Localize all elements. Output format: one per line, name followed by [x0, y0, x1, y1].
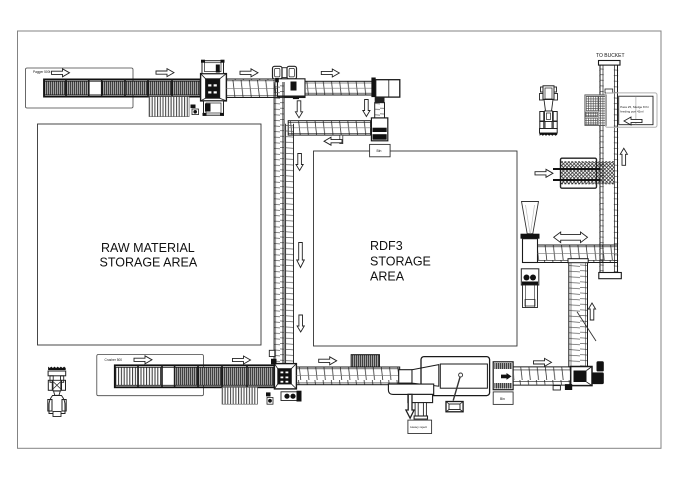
svg-text:Heavy reject: Heavy reject	[410, 425, 427, 429]
svg-text:RAW MATERIAL: RAW MATERIAL	[101, 241, 195, 255]
svg-text:STORAGE AREA: STORAGE AREA	[100, 256, 198, 270]
svg-text:feeding port 42ml: feeding port 42ml	[620, 110, 644, 114]
svg-text:Bin: Bin	[500, 397, 505, 401]
svg-text:STORAGE: STORAGE	[370, 254, 431, 268]
svg-text:Pass 25, Sludge 8 lhr: Pass 25, Sludge 8 lhr	[620, 105, 649, 109]
svg-text:RDF3: RDF3	[370, 239, 403, 253]
svg-text:AREA: AREA	[370, 270, 405, 284]
svg-text:Crusher 500: Crusher 500	[105, 358, 123, 362]
svg-text:TO BUCKET: TO BUCKET	[596, 53, 625, 59]
svg-text:Pagger 500t: Pagger 500t	[33, 70, 50, 74]
svg-text:Bin: Bin	[377, 149, 382, 153]
